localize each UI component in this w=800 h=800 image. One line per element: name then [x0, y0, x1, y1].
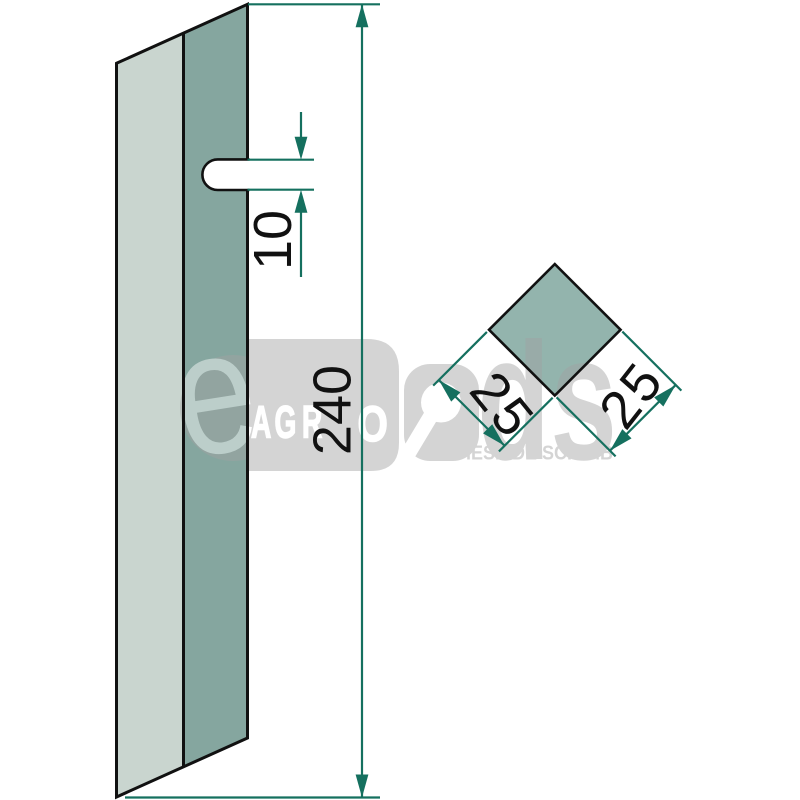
- svg-text:G: G: [275, 397, 297, 447]
- svg-text:240: 240: [303, 365, 363, 455]
- svg-text:10: 10: [243, 210, 303, 270]
- svg-text:A: A: [251, 397, 271, 447]
- svg-text:PIESE DE SCHIMB: PIESE DE SCHIMB: [454, 442, 613, 465]
